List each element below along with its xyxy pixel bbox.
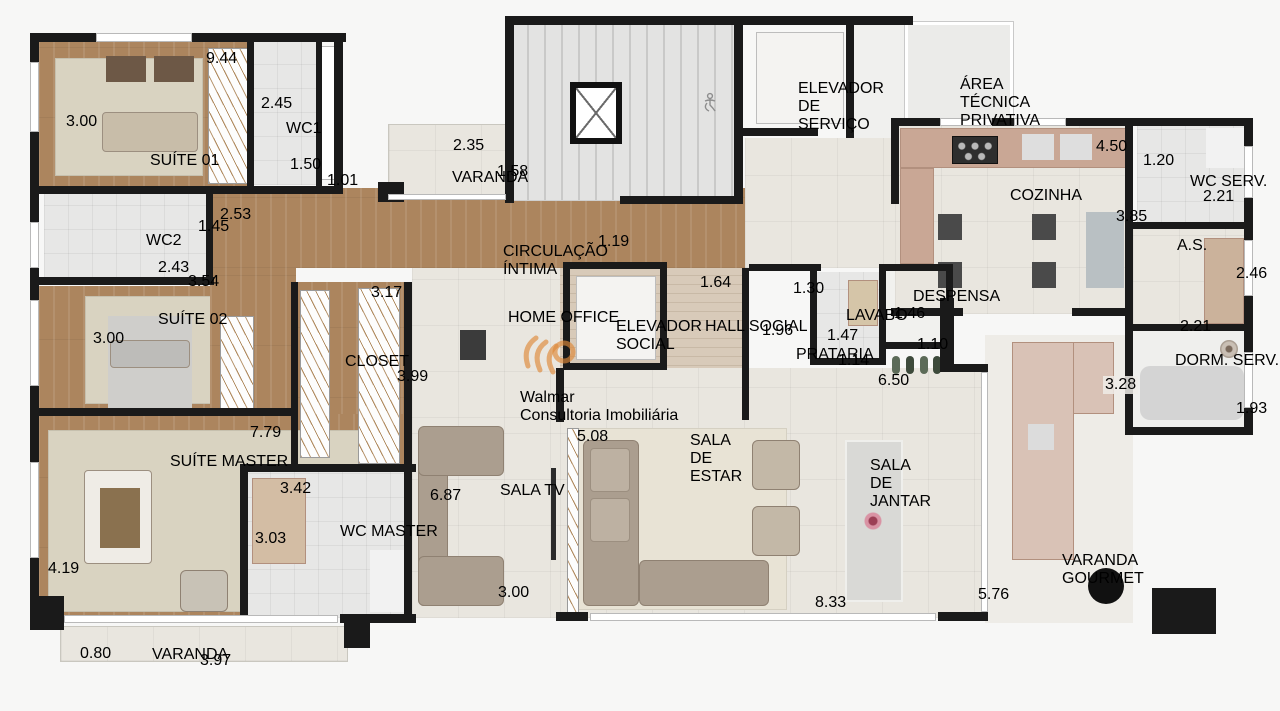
dim-closet-right: 3.99	[397, 368, 428, 386]
dim-wc2-bottom: 2.43	[158, 259, 189, 277]
dim-wc-serv-bottom: 2.21	[1203, 188, 1234, 206]
room-label-sala-estar: SALA DE ESTAR	[690, 432, 750, 486]
wall	[1152, 588, 1216, 634]
stair-elevator-shaft	[570, 82, 622, 144]
wall	[940, 364, 988, 372]
wall	[404, 282, 412, 620]
suite02-wardrobe	[220, 316, 254, 412]
dining-chair-head-top	[856, 420, 892, 438]
dining-chair-r4	[907, 564, 933, 594]
dim-sala-bottom: 8.33	[815, 594, 846, 612]
estar-sofa-cushion-2	[590, 498, 630, 542]
wall	[344, 614, 370, 648]
window	[590, 613, 936, 621]
estar-side-table	[742, 562, 778, 604]
walmar-logo-icon	[520, 312, 588, 384]
wc-master-sink-1	[258, 486, 280, 508]
window	[30, 222, 39, 268]
suite01-blanket	[102, 112, 198, 152]
tv-panel	[545, 426, 567, 614]
dim-lavabo-left: 1.47	[827, 327, 858, 345]
dim-suite01-left: 3.00	[66, 113, 97, 131]
watermark-brand: Walmar	[520, 389, 780, 407]
room-label-sala-tv: SALA TV	[500, 482, 565, 500]
window	[30, 462, 39, 558]
gourmet-plant-icon	[1038, 356, 1056, 374]
dim-suite02-left: 3.00	[93, 330, 124, 348]
wc2-sink	[158, 204, 178, 224]
dim-shaft: 1.01	[327, 172, 358, 190]
wall	[505, 16, 743, 25]
dim-master-top: 7.79	[250, 424, 281, 442]
dim-wc1-left: 2.45	[261, 95, 292, 113]
dim-closet-top: 3.17	[371, 284, 402, 302]
room-label-wc-master: WC MASTER	[340, 523, 438, 541]
gourmet-stool-2	[988, 426, 1016, 454]
dining-chair-r3	[907, 526, 933, 556]
suite01-pillow-r	[154, 56, 194, 82]
dim-suite02-top: 3.54	[188, 273, 219, 291]
watermark: Walmar Consultoria Imobiliária	[520, 312, 780, 402]
dim-wc2-right: 1.45	[198, 218, 229, 236]
accessibility-icon	[698, 90, 722, 114]
gourmet-sink	[1028, 424, 1054, 450]
room-label-wc1: WC1	[286, 120, 322, 138]
tv-sofa-bottom	[418, 556, 504, 606]
dim-wc-master-top: 3.42	[280, 480, 311, 498]
dim-varanda-suite-bottom: 3.97	[200, 652, 231, 670]
wall	[1125, 427, 1253, 435]
room-label-area-tecnica: ÁREA TÉCNICA PRIVATIVA	[960, 76, 1032, 130]
wall	[38, 408, 298, 416]
island-chair-4	[1032, 262, 1056, 288]
estar-armchair-2	[752, 506, 800, 556]
kitchen-sink-2	[1060, 134, 1092, 160]
service-elevator-rail	[762, 36, 838, 43]
wall	[206, 190, 213, 282]
wall	[734, 16, 743, 203]
window	[96, 33, 192, 42]
suite02-nightstand-r	[194, 388, 214, 408]
room-label-suite01: SUÍTE 01	[150, 152, 219, 170]
wc-master-toilet	[370, 480, 394, 510]
dim-lavabo-hall: 1.30	[793, 280, 824, 298]
window	[64, 615, 338, 623]
wall	[30, 596, 64, 630]
room-label-sala-jantar: SALA DE JANTAR	[870, 457, 930, 511]
cooktop	[952, 136, 998, 164]
dim-sala-estar-left: 5.08	[577, 428, 608, 446]
master-nightstand-t	[48, 432, 76, 464]
room-label-suite02: SUÍTE 02	[158, 311, 227, 329]
dim-churrasqueira: 3.28	[1103, 376, 1138, 394]
dim-as-bottom: 2.21	[1180, 318, 1211, 336]
gourmet-stool-4	[988, 514, 1016, 542]
wall	[1072, 308, 1133, 316]
master-dresser	[213, 474, 237, 568]
room-label-varanda-gourmet: VARANDA GOURMET	[1062, 552, 1142, 588]
dim-hall-social-top: 1.64	[700, 274, 731, 292]
wall	[1133, 222, 1247, 229]
floor-plan: SUÍTE 01 WC1 WC2 SUÍTE 02 CLOSET SUÍTE M…	[0, 0, 1280, 711]
dim-despensa-bottom: 1.10	[917, 336, 948, 354]
wc-master-bathtub	[252, 574, 340, 614]
watermark-tagline: Consultoria Imobiliária	[520, 407, 780, 425]
master-lounge-chair	[180, 570, 228, 612]
wall	[891, 118, 899, 204]
office-chair	[460, 330, 486, 360]
accessibility-sign	[698, 90, 724, 116]
coffee-machine	[852, 377, 874, 391]
wall	[1133, 118, 1253, 126]
room-label-despensa: DESPENSA	[913, 288, 1000, 306]
window	[981, 372, 988, 612]
wall	[879, 264, 953, 271]
tv-slat-door	[567, 428, 579, 616]
coffee-bar-plant-icon	[824, 376, 840, 392]
window	[388, 194, 506, 200]
tv-sofa-top	[418, 426, 504, 476]
island-plant-icon	[988, 242, 1008, 262]
dining-chair-l1	[815, 450, 841, 480]
dim-wc-serv-left: 1.20	[1143, 152, 1174, 170]
dim-dorm-serv-right: 1.93	[1236, 400, 1267, 418]
wall	[620, 196, 743, 204]
washer-1	[1210, 248, 1238, 276]
gourmet-stool-5	[988, 558, 1016, 586]
wall	[940, 298, 954, 372]
island-chair-3	[1032, 214, 1056, 240]
dim-gourmet-left: 5.76	[978, 586, 1009, 604]
wall	[247, 40, 254, 188]
wine-bottle-3	[920, 356, 928, 374]
wall	[334, 33, 343, 193]
wall	[240, 468, 248, 620]
suite01-pillow-l	[106, 56, 146, 82]
office-desk	[420, 274, 460, 378]
wall	[556, 612, 588, 621]
dining-chair-l3	[815, 526, 841, 556]
room-label-as: A.S.	[1177, 237, 1207, 255]
wc-master-shower	[370, 550, 408, 612]
dim-circulacao: 1.19	[598, 233, 629, 251]
dim-varanda-suite-left: 0.80	[80, 645, 111, 663]
gourmet-counter-bar	[1012, 342, 1074, 560]
room-label-elevador-servico: ELEVADOR DE SERVIÇO	[798, 80, 890, 134]
kitchen-sink-1	[1022, 134, 1054, 160]
kitchen-counter-left	[900, 168, 934, 264]
terrace-floor	[560, 622, 1152, 660]
dining-flowers	[864, 512, 882, 530]
dim-cozinha-right: 3.85	[1116, 208, 1147, 226]
dim-varanda-top-h: 1.58	[497, 163, 528, 181]
room-label-circulacao: CIRCULAÇÃO ÍNTIMA	[503, 243, 595, 279]
room-label-wc2: WC2	[146, 232, 182, 250]
estar-sofa-cushion-1	[590, 448, 630, 492]
dim-as-right: 2.46	[1236, 265, 1267, 283]
master-throw	[100, 488, 140, 548]
window	[30, 300, 39, 386]
wall	[38, 186, 343, 194]
room-label-cozinha: COZINHA	[1010, 187, 1082, 205]
room-label-dorm-serv: DORM. SERV.	[1175, 352, 1279, 370]
closet-wardrobe-right	[358, 288, 400, 464]
wc-serv-toilet	[1146, 168, 1172, 200]
dim-wc1-bottom: 1.50	[290, 156, 321, 174]
wc1-toilet	[272, 146, 292, 174]
window	[30, 62, 39, 132]
dim-sala-tv-left: 6.87	[430, 487, 461, 505]
gourmet-stool-1	[988, 382, 1016, 410]
dining-chair-l2	[815, 488, 841, 518]
kitchen-counter-top	[900, 128, 1126, 168]
estar-armchair-1	[752, 440, 800, 490]
washer-2	[1210, 288, 1238, 316]
wall	[743, 16, 913, 25]
dorm-serv-bed	[1140, 366, 1244, 420]
dining-chair-l4	[815, 564, 841, 594]
dim-cozinha-top: 4.50	[1096, 138, 1127, 156]
dim-wc-master-left: 3.03	[255, 530, 286, 548]
wc2-toilet	[108, 210, 130, 240]
gourmet-stool-3	[988, 470, 1016, 498]
dim-social-depth: 6.50	[878, 372, 909, 390]
office-round-table	[430, 392, 456, 418]
suite02-nightstand-l	[86, 388, 106, 408]
dim-master-left: 4.19	[48, 560, 79, 578]
dim-despensa-left: 1.46	[894, 305, 925, 323]
wc-serv-sink	[1192, 134, 1210, 152]
island-chair-1	[938, 214, 962, 240]
suite01-nightstand	[70, 60, 96, 102]
dim-suite01-top: 9.44	[206, 50, 237, 68]
dim-lavabo-bottom: 1.14	[838, 352, 869, 370]
closet-wardrobe-left	[300, 290, 330, 458]
dim-sala-tv-bottom: 3.00	[498, 584, 529, 602]
wall	[291, 282, 298, 472]
wc-serv-shower	[1206, 128, 1244, 168]
wall	[938, 612, 988, 621]
dim-varanda-top-w: 2.35	[453, 137, 484, 155]
room-label-suite-master: SUÍTE MASTER	[170, 453, 288, 471]
